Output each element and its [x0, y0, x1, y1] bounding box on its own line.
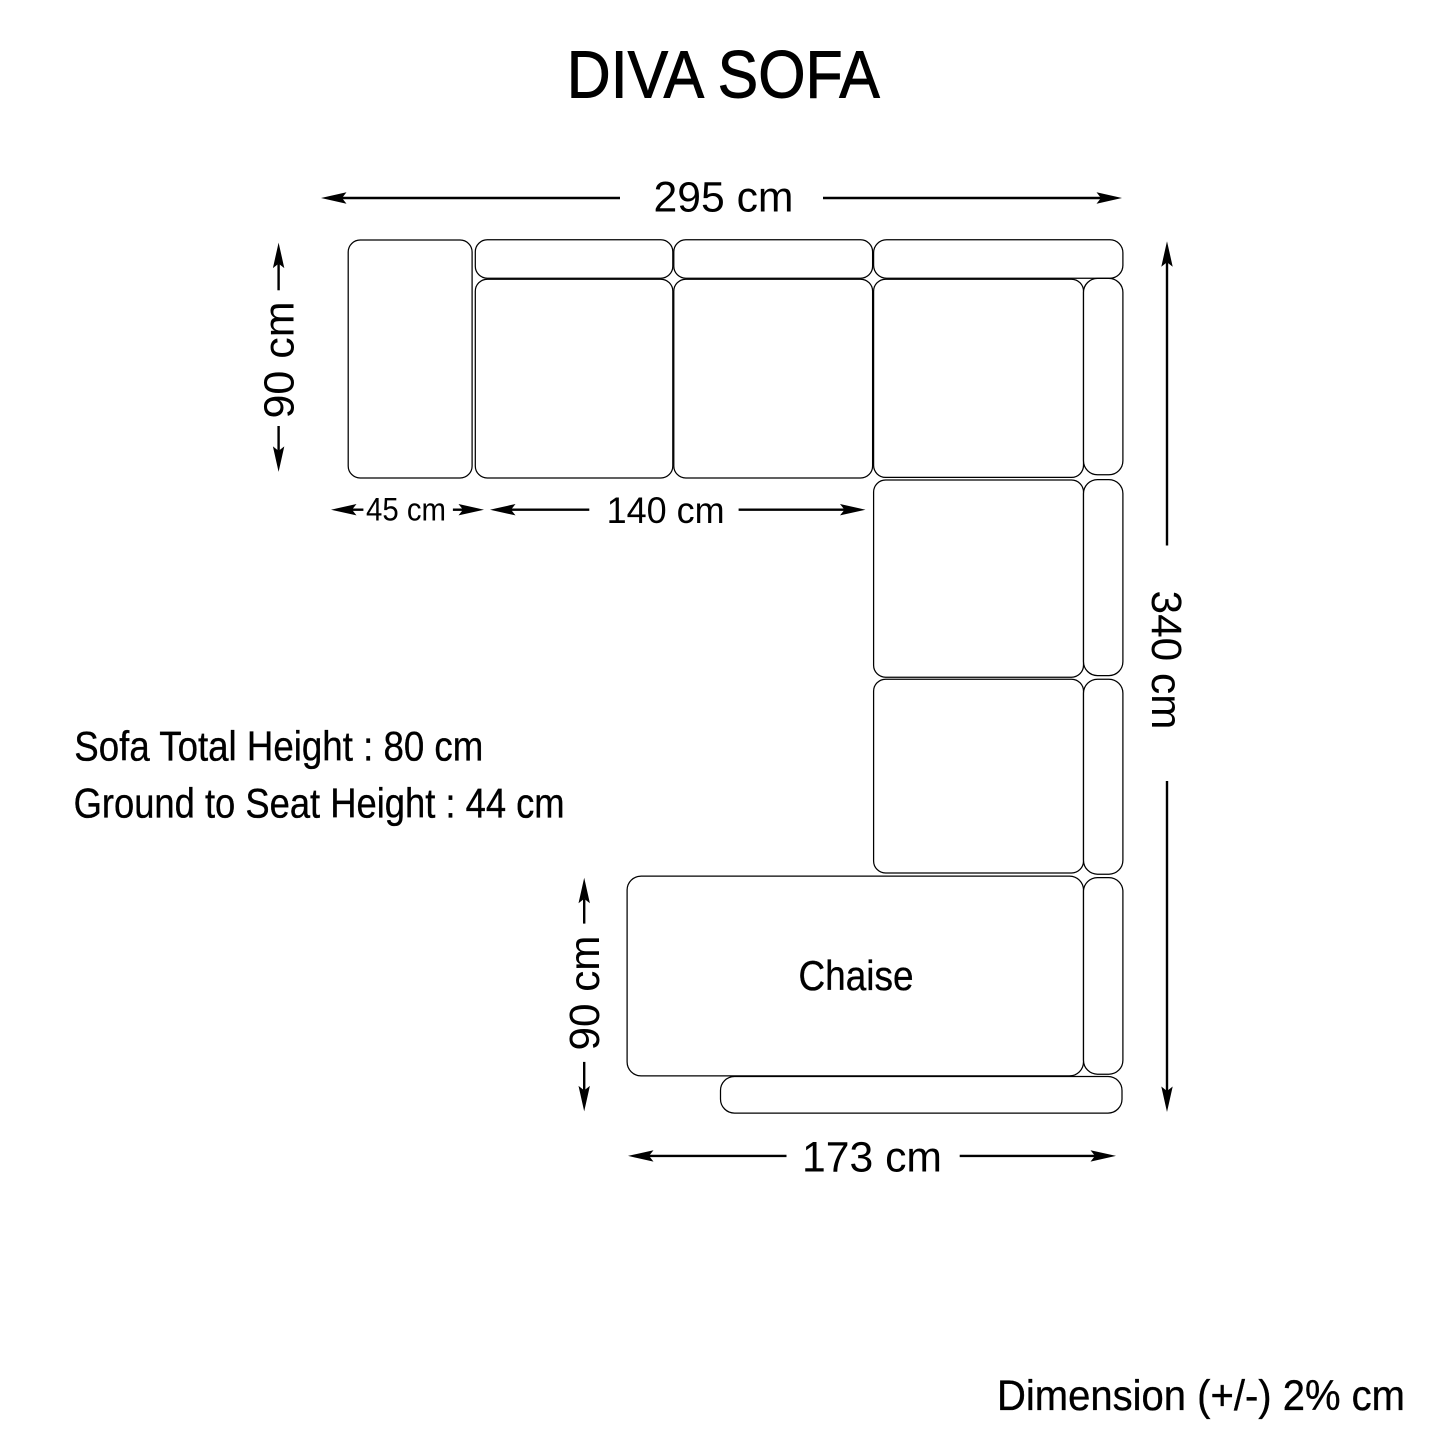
- svg-text:140 cm: 140 cm: [607, 490, 725, 531]
- svg-text:173 cm: 173 cm: [802, 1133, 942, 1181]
- svg-text:Sofa Total Height : 80 cm: Sofa Total Height : 80 cm: [74, 723, 483, 770]
- svg-text:Dimension (+/-) 2% cm: Dimension (+/-) 2% cm: [997, 1373, 1405, 1420]
- svg-text:90 cm: 90 cm: [561, 936, 609, 1051]
- svg-text:45 cm: 45 cm: [366, 491, 446, 527]
- svg-text:90 cm: 90 cm: [255, 302, 303, 419]
- svg-text:DIVA SOFA: DIVA SOFA: [567, 37, 880, 112]
- svg-text:Ground to Seat Height : 44 cm: Ground to Seat Height : 44 cm: [74, 780, 565, 827]
- svg-text:340 cm: 340 cm: [1142, 591, 1190, 730]
- svg-text:295 cm: 295 cm: [654, 174, 794, 222]
- svg-text:Chaise: Chaise: [799, 952, 914, 999]
